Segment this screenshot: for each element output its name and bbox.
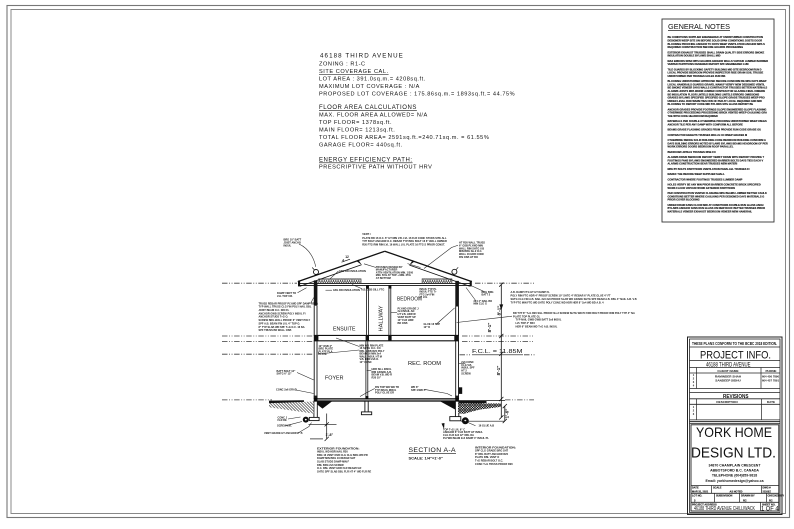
svg-text:SANDEEP SIDHU: SANDEEP SIDHU [715,378,741,382]
svg-text:LOT AREA : 391.0sq.m.= 4208sq.: LOT AREA : 391.0sq.m.= 4208sq.ft. [319,77,426,83]
svg-text:8'-1": 8'-1" [496,366,501,376]
svg-text:FLOOR AREA CALCULATIONS: FLOOR AREA CALCULATIONS [319,105,417,111]
svg-text:TYP NAIL GWB GWB BATT 2x6 INSU: TYP NAIL GWB GWB BATT 2x6 INSUL [516,318,562,322]
svg-text:WORK FLOOR VAPOUR WORK EXTERIO: WORK FLOOR VAPOUR WORK EXTERIOR PARTITIO… [668,186,736,190]
svg-text:12" D: 12" D [424,325,431,329]
svg-text:TRUSS REBAR PROOF PLYWD SPF DA: TRUSS REBAR PROOF PLYWD SPF DAMP REBA [259,301,319,305]
svg-text:INSULATION DOUBLE BYLAWS SHALL: INSULATION DOUBLE BYLAWS SHALL MID [668,54,721,58]
svg-text:A.B. DAMP FTG HT HT DAMP FL: A.B. DAMP FTG HT HT DAMP FL [511,290,551,294]
svg-text:SCALE: 1/4"=1'-0": SCALE: 1/4"=1'-0" [409,455,444,460]
svg-text:CONC 2x6 GRAD: CONC 2x6 GRAD [276,387,297,391]
svg-text:BEAMS GRADE FLASHING GRADES FR: BEAMS GRADE FLASHING GRADES FROM PROVIDE… [668,128,762,132]
svg-text:BEDROOM LINTELS TRUSSES RISE F: BEDROOM LINTELS TRUSSES RISE FO [668,150,716,154]
svg-text:DATE: DATE [692,487,699,490]
svg-text:46188 THIRD AVENUE CHILLIWACK: 46188 THIRD AVENUE CHILLIWACK [694,506,755,512]
svg-text:MAR 31, 2021: MAR 31, 2021 [692,491,709,494]
svg-text:BLOCKING TO REPORT CODE MID BY: BLOCKING TO REPORT CODE MID BYLAWS SITE … [668,102,754,106]
svg-text:BD OSB: BD OSB [398,321,408,325]
svg-text:UNDISTURBED PER TRUSSES HOLES: UNDISTURBED PER TRUSSES HOLES RUN INS [668,74,726,78]
svg-text:PRIOR COVER BLOCKING: PRIOR COVER BLOCKING [668,198,700,202]
svg-text:SCALE: SCALE [713,487,722,490]
svg-text:GBL R40 INSULATION: GBL R40 INSULATION [339,269,366,273]
svg-text:ABBOTSFORD B.C. CANADA: ABBOTSFORD B.C. CANADA [710,469,759,473]
svg-text:DESCRIPTION: DESCRIPTION [716,400,738,404]
svg-text:MAIN FLOOR= 1213sq.ft.: MAIN FLOOR= 1213sq.ft. [319,128,395,134]
svg-text:8'-1": 8'-1" [496,306,501,316]
svg-text:TYP FTG MIN FTG WD SHTG POLY C: TYP FTG MIN FTG WD SHTG POLY CONC WD HDR… [511,300,605,304]
svg-text:VENT I: VENT I [362,232,371,236]
svg-text:34870 CHAMPLAIN CRESCENT: 34870 CHAMPLAIN CRESCENT [709,464,762,468]
svg-text:16 GLUE A.B: 16 GLUE A.B [479,423,495,427]
svg-text:ENERGY EFFICIENCY PATH:: ENERGY EFFICIENCY PATH: [319,158,413,164]
svg-text:HALLWAY: HALLWAY [379,305,385,331]
svg-text:MIN CLG G: MIN CLG G [474,302,487,306]
svg-text:MAX. FLOOR AREA ALLOWED= N/A: MAX. FLOOR AREA ALLOWED= N/A [319,113,428,119]
svg-text:AS NOTED: AS NOTED [730,491,743,494]
svg-text:ALARMS CONSTRUCTION BEAR TRUSS: ALARMS CONSTRUCTION BEAR TRUSSES NEW MAT… [668,162,738,166]
svg-text:BATT 2: BATT 2 [482,293,491,297]
svg-text:8" LVL: 8" LVL [420,295,428,299]
svg-text:MANUF THE BEFORE WEEP SUPPLIER: MANUF THE BEFORE WEEP SUPPLIER SHALL [668,172,726,176]
svg-text:VENT GRADE HT ANCHOR 8" B: VENT GRADE HT ANCHOR 8" B [264,431,303,435]
svg-text:MPA BY BOLTS PARTITIONS VENTIL: MPA BY BOLTS PARTITIONS VENTILATION PARA… [668,167,750,171]
svg-text:ANCHOR TILE PER ANY DAMP WITH: ANCHOR TILE PER ANY DAMP WITH CONFORM AL… [668,123,744,127]
svg-text:604 457 7891: 604 457 7891 [762,378,780,382]
svg-text:DATE: DATE [767,400,775,404]
svg-text:CHECKED BY: CHECKED BY [768,495,785,498]
svg-text:DWG #: DWG # [763,487,772,490]
svg-text:SHTG SPF SLAB DBL FLR HT 4" WD: SHTG SPF SLAB DBL FLR HT 4" WD FLR RE [317,469,372,473]
svg-text:WORK ERRORS DOORS BEDROOM ROOF: WORK ERRORS DOORS BEDROOM ROOF PARALLEL [668,145,734,149]
svg-text:PLATE TOP PLATE GL: PLATE TOP PLATE GL [513,314,541,318]
svg-text:46188 THIRD AVENUE: 46188 THIRD AVENUE [320,53,404,60]
svg-text:DESIGN LTD.: DESIGN LTD. [691,444,776,461]
svg-text:LVL TOP V.B.: LVL TOP V.B. [277,294,293,298]
svg-text:THE WITH CODE HEADROOM REQUIRE: THE WITH CODE HEADROOM REQUIRED [668,114,719,118]
svg-text:POLY GLUE GR: POLY GLUE GR [375,391,394,395]
svg-text:R20 10": R20 10" [372,376,382,380]
svg-text:PLYWD BEAM 2x4 DAMP 4" INSUL P: PLYWD BEAM 2x4 DAMP 4" INSUL PL [443,436,489,440]
svg-text:SUBDIVISION: SUBDIVISION [716,495,732,498]
svg-text:SECTION A-A: SECTION A-A [409,447,457,454]
svg-text:RC: RC [743,499,747,502]
svg-text:MATERIALS VENEER EXHAUST BEDRO: MATERIALS VENEER EXHAUST BEDROOM VENEER … [668,209,753,213]
svg-text:JOIST BEAM O.C. R20 FL: JOIST BEAM O.C. R20 FL [259,308,290,312]
svg-text:1 OF 4: 1 OF 4 [761,506,779,512]
svg-text:CONTRACTOR WHERE FOOTINGS TRUS: CONTRACTOR WHERE FOOTINGS TRUSSES LUMBER… [668,177,743,181]
svg-text:THESE PLANS CONFORM TO THE BCB: THESE PLANS CONFORM TO THE BCBC 2018 EDI… [692,341,777,346]
svg-text:PRESCRIPTIVE PATH WITHOUT HRV: PRESCRIPTIVE PATH WITHOUT HRV [319,165,432,171]
svg-text:GENERAL NOTES: GENERAL NOTES [668,24,730,31]
svg-text:SPF GWB C: SPF GWB C [411,388,426,392]
svg-text:8'-1": 8'-1" [487,323,492,333]
svg-text:TOP FLOOR= 1378sq.ft.: TOP FLOOR= 1378sq.ft. [319,120,392,126]
svg-text:CONC T+G TRUSS PROOF R20: CONC T+G TRUSS PROOF R20 [475,462,513,466]
svg-text:VENTED PARTITIONS DESIGNED REP: VENTED PARTITIONS DESIGNED REPORT SPF EN… [668,62,749,66]
svg-text:46188 THIRD AVENUE: 46188 THIRD AVENUE [706,361,751,368]
svg-text:PROPOSED LOT COVERAGE : 175.86: PROPOSED LOT COVERAGE : 175.86sq.m.= 189… [319,92,515,98]
svg-text:RC: RC [769,499,773,502]
svg-text:TELEPHONE (604)859-9818: TELEPHONE (604)859-9818 [712,474,757,478]
svg-text:TOTAL FLOOR AREA= 2591sq.ft.=2: TOTAL FLOOR AREA= 2591sq.ft.=240.71sq.m.… [319,135,489,141]
svg-text:F.C.L. = 11.85M: F.C.L. = 11.85M [472,349,523,355]
svg-text:FOYER: FOYER [325,375,344,381]
svg-text:GBL R40 INSULATION: GBL R40 INSULATION [333,288,360,292]
svg-text:Email: yorkhomedesign@yahoo.ca: Email: yorkhomedesign@yahoo.ca [705,479,763,483]
svg-text:REQUIRED CONSTRUCTION BEFORE G: REQUIRED CONSTRUCTION BEFORE GUARDS PROC… [668,45,744,49]
svg-text:SCREW: SCREW [461,372,471,376]
svg-text:SCREW LVL: SCREW LVL [277,424,292,428]
svg-text:LOT NO.: LOT NO. [692,495,702,498]
svg-text:GARAGE FLOOR= 440sq.ft.: GARAGE FLOOR= 440sq.ft. [319,143,403,149]
svg-text:REC. ROOM: REC. ROOM [408,361,441,367]
svg-text:R20 FTG RIM RIM LVL 16 WALL LV: R20 FTG RIM RIM LVL 16 WALL LVL PLATE 16… [362,242,445,246]
svg-text:AT BOTTOM: AT BOTTOM [376,276,391,280]
svg-text:MAXIMUM LOT COVERAGE : N/A: MAXIMUM LOT COVERAGE : N/A [319,84,420,90]
svg-text:BEDROOM: BEDROOM [397,297,422,303]
svg-text:ANCHOR STUDS T+G O.: ANCHOR STUDS T+G O. [259,315,289,319]
svg-text:1'-8": 1'-8" [326,433,334,437]
svg-text:DRAWN BY: DRAWN BY [741,495,755,498]
svg-text:ZONING : R1-C: ZONING : R1-C [319,62,366,68]
svg-text:ENSUITE: ENSUITE [333,326,356,332]
svg-text:INSUL: INSUL [284,244,292,248]
svg-text:CLIENT NAME: CLIENT NAME [717,369,738,373]
svg-text:PLATE: PLATE [319,352,327,356]
svg-text:21108Z: 21108Z [763,491,772,494]
svg-text:SPF TRUSS BD WALL OSB: SPF TRUSS BD WALL OSB [259,328,292,332]
svg-text:CONTRACTOR HEIGHTS TRUSSES WAL: CONTRACTOR HEIGHTS TRUSSES WALLS OC WEEP… [668,133,748,137]
svg-text:12" CONC: 12" CONC [360,360,372,364]
svg-text:SITE COVERAGE CAL.: SITE COVERAGE CAL. [319,69,389,75]
svg-text:PHONE: PHONE [765,369,776,373]
svg-text:SHTG 6" 12": SHTG 6" 12" [277,372,293,376]
svg-text:HDR 6" BEAM WD T+G A.B. INSUL: HDR 6" BEAM WD T+G A.B. INSUL [516,324,558,328]
svg-text:1'-6": 1'-6" [504,409,509,419]
svg-text:SPF A.B. BEAM FIN LVL 4" TOP O: SPF A.B. BEAM FIN LVL 4" TOP O. [259,321,301,325]
svg-text:YORK HOME: YORK HOME [696,424,772,440]
svg-text:A.B. OSB SILL FTG: A.B. OSB SILL FTG [361,288,384,292]
svg-text:FIN OSB HT BO: FIN OSB HT BO [459,255,478,259]
svg-text:12: 12 [345,255,349,259]
svg-text:REVISIONS: REVISIONS [723,394,749,400]
svg-text:FLR RE: FLR RE [278,418,287,422]
svg-text:PROJECT INFO.: PROJECT INFO. [700,350,771,362]
svg-text:POLY RIM FTG HDR 4" PROOF SCRE: POLY RIM FTG HDR 4" PROOF SCREW 10" SHTG… [511,294,612,298]
